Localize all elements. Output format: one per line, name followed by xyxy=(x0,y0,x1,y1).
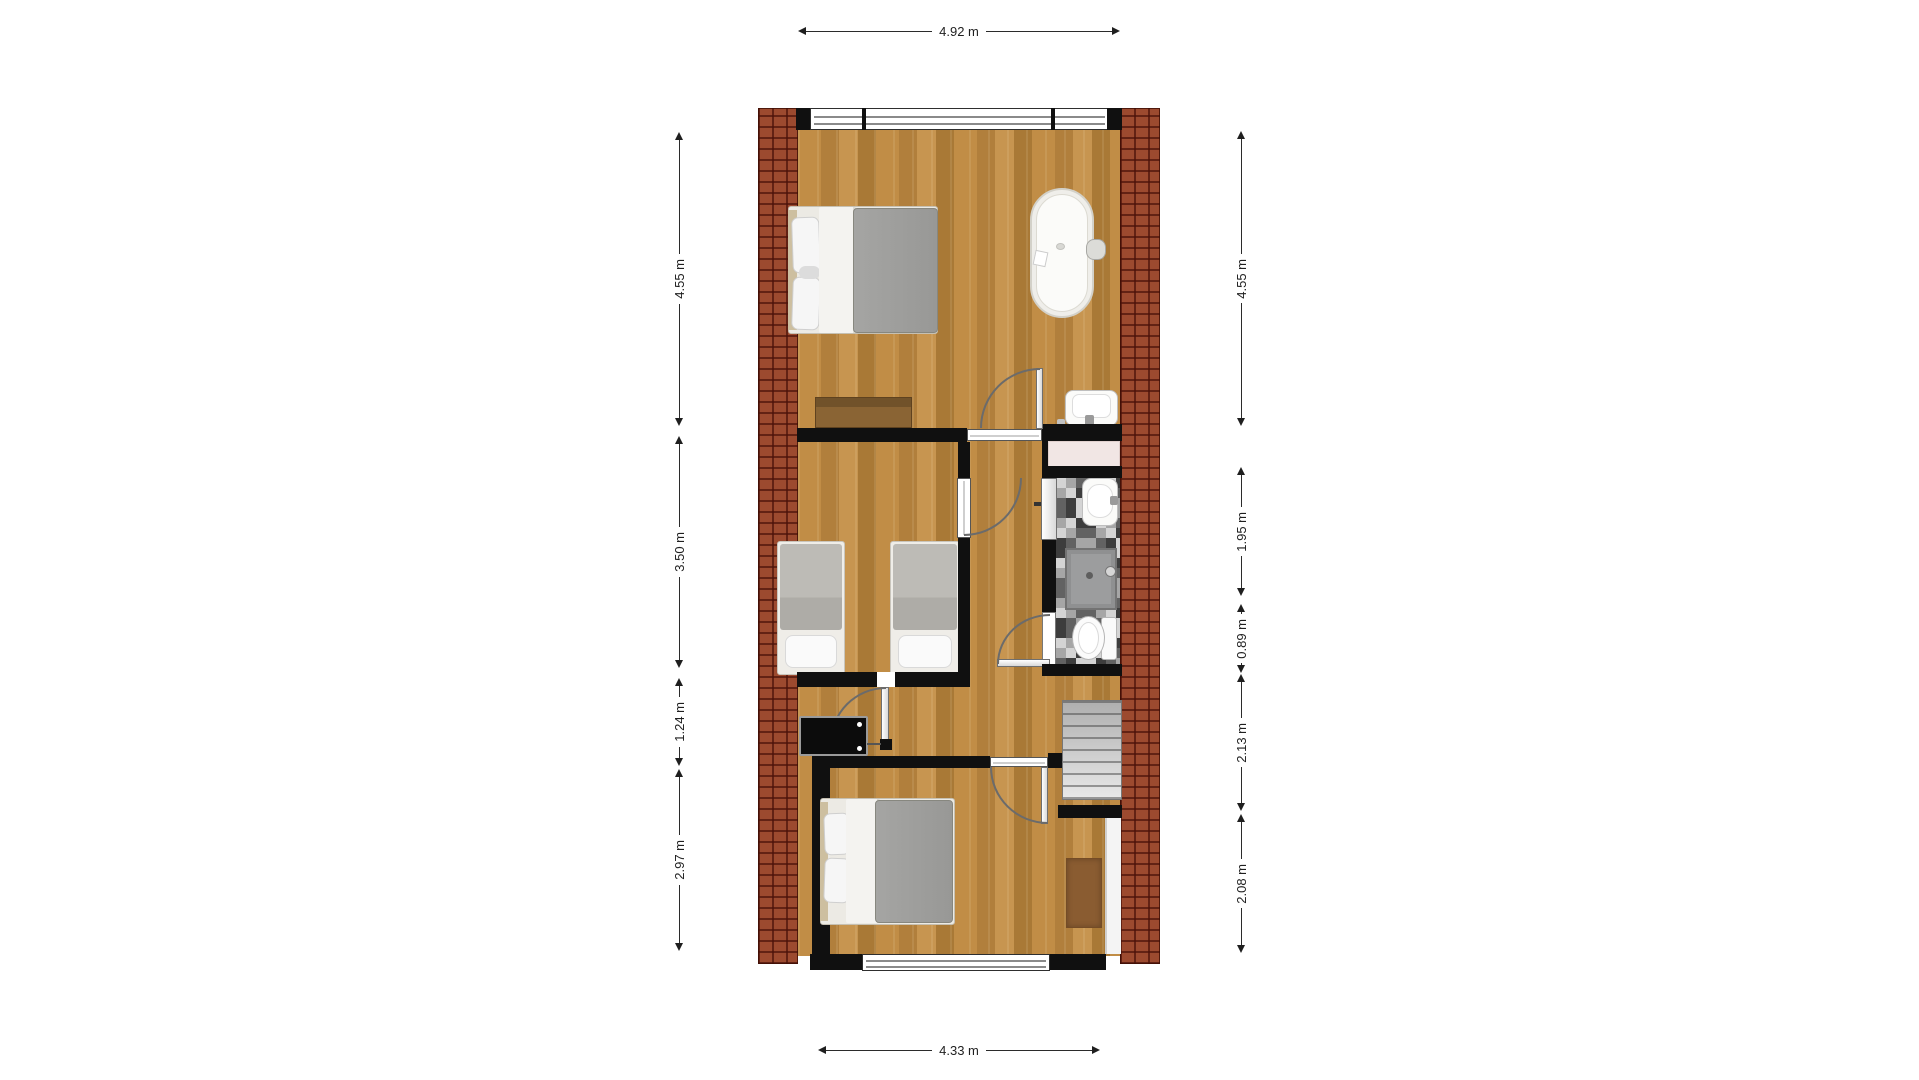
dimension-line xyxy=(1241,682,1242,718)
dimension-label: 4.33 m xyxy=(939,1043,979,1058)
arrow-up-icon xyxy=(1237,814,1245,822)
dimension-line xyxy=(986,1050,1092,1051)
dimension-top: 4.92 m xyxy=(798,23,1120,39)
toilet-seat xyxy=(1078,622,1099,654)
shower xyxy=(1065,548,1117,610)
window-top xyxy=(810,108,1109,130)
single-bed-pillow xyxy=(898,635,952,668)
wall-below-niche xyxy=(1048,466,1122,478)
arrow-down-icon xyxy=(675,943,683,951)
bed-cushion xyxy=(799,266,820,279)
dimension-left-4: 2.97 m xyxy=(664,769,694,951)
arrow-down-icon xyxy=(675,418,683,426)
tv-indicator xyxy=(857,722,862,727)
threshold-line xyxy=(993,762,1045,764)
wall-bedroom2-east-upper xyxy=(958,442,970,478)
window-glazing xyxy=(814,116,1105,126)
bed-sheet xyxy=(819,207,856,333)
wall-bathroom-west-mid xyxy=(1042,540,1056,612)
dimension-line xyxy=(679,777,680,835)
arrow-right-icon xyxy=(1092,1046,1100,1054)
wardrobe-top-edge xyxy=(816,398,911,407)
wall-wc-south xyxy=(1042,664,1122,676)
arrow-down-icon xyxy=(1237,418,1245,426)
dimension-line xyxy=(1241,822,1242,859)
arrow-up-icon xyxy=(1237,604,1245,612)
wall-top-right-corner xyxy=(1107,108,1122,130)
arrow-right-icon xyxy=(1112,27,1120,35)
dimension-label: 4.55 m xyxy=(672,259,687,299)
bed-duvet xyxy=(853,208,938,333)
wardrobe xyxy=(815,397,912,428)
dimension-bottom: 4.33 m xyxy=(818,1042,1100,1058)
dimension-label: 2.13 m xyxy=(1234,723,1249,763)
window-bottom xyxy=(862,954,1050,971)
tv-indicator xyxy=(857,746,862,751)
door-opening-landing xyxy=(877,672,895,687)
dimension-label: 4.92 m xyxy=(939,24,979,39)
arrow-up-icon xyxy=(1237,467,1245,475)
wall-bedroom1-south-right xyxy=(1042,424,1122,441)
staircase xyxy=(1062,700,1122,800)
dimension-label: 1.95 m xyxy=(1234,512,1249,552)
dimension-left-1: 4.55 m xyxy=(664,132,694,426)
dimension-line xyxy=(1241,139,1242,254)
arrow-up-icon xyxy=(675,769,683,777)
dimension-right-4: 2.13 m xyxy=(1226,674,1256,811)
wall-bedroom1-south-left xyxy=(797,428,967,442)
dimension-label: 4.55 m xyxy=(1234,259,1249,299)
shower-drain xyxy=(1086,572,1093,579)
dimension-right-2: 1.95 m xyxy=(1226,467,1256,596)
dimension-line xyxy=(679,304,680,418)
dimension-line xyxy=(806,31,932,32)
dimension-left-3: 1.24 m xyxy=(664,678,694,766)
brick-wall-right xyxy=(1120,108,1160,964)
arrow-down-icon xyxy=(1237,588,1245,596)
arrow-up-icon xyxy=(675,436,683,444)
window-glazing xyxy=(866,960,1046,968)
door-handle-bathroom xyxy=(1034,502,1041,506)
bathtub-drain xyxy=(1056,243,1065,250)
wall-stairs-south xyxy=(1058,805,1122,818)
single-bed-duvet xyxy=(780,544,842,630)
wall-bottom-left xyxy=(810,954,862,970)
closet-niche xyxy=(1048,441,1120,467)
tv-cable-line xyxy=(867,743,881,745)
dimension-line xyxy=(1241,908,1242,945)
dimension-line xyxy=(1241,475,1242,507)
arrow-up-icon xyxy=(675,132,683,140)
wall-bedroom3-north xyxy=(812,756,990,768)
arrow-left-icon xyxy=(798,27,806,35)
arrow-down-icon xyxy=(1237,803,1245,811)
window-mullion xyxy=(862,108,866,130)
door-threshold-bedroom1 xyxy=(967,429,1042,441)
arrow-down-icon xyxy=(1237,665,1245,673)
wall-bottom-right xyxy=(1050,954,1106,970)
arrow-up-icon xyxy=(1237,674,1245,682)
dimension-left-2: 3.50 m xyxy=(664,436,694,668)
dimension-label: 0.89 m xyxy=(1234,619,1249,659)
arrow-up-icon xyxy=(675,678,683,686)
arrow-left-icon xyxy=(818,1046,826,1054)
dimension-line xyxy=(1241,612,1242,614)
wall-bedroom2-south-left xyxy=(797,672,877,687)
bed-duvet xyxy=(875,800,953,923)
dimension-line xyxy=(679,140,680,254)
wall-bedroom2-east-lower xyxy=(958,538,970,672)
dimension-right-5: 2.08 m xyxy=(1226,814,1256,953)
single-bed-pillow xyxy=(785,635,837,668)
dimension-line xyxy=(986,31,1112,32)
wall-corner-bedroom3 xyxy=(1048,753,1062,768)
dimension-line xyxy=(1241,303,1242,418)
arrow-down-icon xyxy=(675,660,683,668)
rug xyxy=(1066,858,1102,928)
door-leaf-bathroom xyxy=(1041,478,1057,540)
floorplan-canvas: 4.92 m 4.33 m 4.55 m 3.50 m 1.24 m 2.97 … xyxy=(0,0,1919,1080)
window-mullion xyxy=(1051,108,1055,130)
dimension-line xyxy=(679,577,680,660)
dimension-line xyxy=(679,747,680,758)
dimension-line xyxy=(1241,767,1242,803)
dimension-label: 1.24 m xyxy=(672,702,687,742)
arrow-down-icon xyxy=(675,758,683,766)
bathtub-faucet xyxy=(1086,239,1106,260)
bed-pillow xyxy=(791,277,821,331)
bed-pillow xyxy=(791,217,821,274)
threshold-line xyxy=(970,435,1039,437)
wall-top-left-corner xyxy=(796,108,811,130)
dimension-right-1: 4.55 m xyxy=(1226,131,1256,426)
single-bed-duvet xyxy=(893,544,957,630)
dimension-line xyxy=(826,1050,932,1051)
dimension-line xyxy=(1241,556,1242,588)
dimension-label: 2.97 m xyxy=(672,840,687,880)
shower-head xyxy=(1105,566,1116,577)
arrow-down-icon xyxy=(1237,945,1245,953)
wall-bedroom2-south-right xyxy=(895,672,970,687)
door-threshold-bedroom3 xyxy=(990,757,1048,767)
dimension-right-3: 0.89 m xyxy=(1226,604,1256,673)
dimension-label: 2.08 m xyxy=(1234,864,1249,904)
washbasin-tap xyxy=(1110,496,1118,505)
arrow-up-icon xyxy=(1237,131,1245,139)
stairwell-wall-strip xyxy=(1105,818,1121,954)
shower-tray xyxy=(1071,554,1111,604)
dimension-line xyxy=(679,686,680,697)
dimension-label: 3.50 m xyxy=(672,532,687,572)
dimension-line xyxy=(679,885,680,943)
dimension-line xyxy=(679,444,680,527)
